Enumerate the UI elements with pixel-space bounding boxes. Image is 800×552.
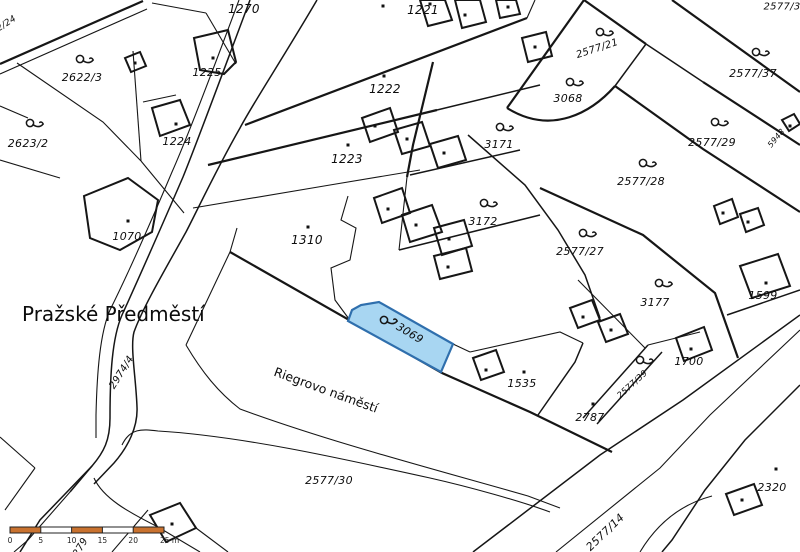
building-dot (448, 238, 451, 241)
building-dot (722, 212, 725, 215)
building-dot (534, 46, 537, 49)
parcel-label-1223: 1223 (331, 152, 363, 166)
scale-bar-tick-3: 15 (98, 536, 108, 545)
building-dot (347, 144, 350, 147)
cadastral-map-viewport[interactable]: 2/242622/32623/2107012251224127012211222… (0, 0, 800, 552)
garden-symbol-icon (711, 118, 728, 125)
scale-bar-tick-4: 20 (128, 536, 138, 545)
parcel-label-1599: 1599 (748, 289, 777, 302)
building-dot (171, 523, 174, 526)
parcel-label-1070: 1070 (112, 230, 141, 243)
garden-symbol-icon (596, 28, 613, 35)
building-dot (765, 282, 768, 285)
map-labels: 2/242622/32623/2107012251224127012211222… (0, 2, 800, 552)
garden-symbol-icon (480, 199, 497, 206)
building-dot (374, 125, 377, 128)
parcel-label-2577-30: 2577/30 (305, 474, 353, 487)
garden-symbol-icon (76, 55, 93, 62)
parcel-label-2-24: 2/24 (0, 14, 18, 34)
parcel-label-2577-29: 2577/29 (688, 136, 736, 149)
parcel-label-1225: 1225 (192, 66, 221, 79)
garden-symbol-icon (566, 78, 583, 85)
parcel-label-2577-37: 2577/37 (729, 67, 777, 80)
parcel-label-3172: 3172 (468, 215, 497, 228)
building-dot (747, 221, 750, 224)
parcel-label-1224: 1224 (162, 135, 191, 148)
building-dot (507, 6, 510, 9)
building-dot (582, 316, 585, 319)
parcel-label-3171: 3171 (484, 138, 513, 151)
cadastral-map-canvas[interactable]: 2/242622/32623/2107012251224127012211222… (0, 0, 800, 552)
building-dot (387, 208, 390, 211)
place-label-Riegrovo-n-m-st-: Riegrovo náměstí (272, 364, 381, 416)
parcel-label-2320: 2320 (757, 481, 786, 494)
garden-symbol-icon (26, 119, 43, 126)
garden-symbol-icon (655, 279, 672, 286)
parcel-label-2577-14: 2577/14 (584, 511, 627, 552)
parcel-label-5948: 5948 (766, 127, 787, 149)
scale-bar-tick-0: 0 (8, 536, 13, 545)
building-dot (464, 14, 467, 17)
scale-bar-tick-1: 5 (38, 536, 43, 545)
garden-symbol-icon (752, 48, 769, 55)
parcel-label-2577-21: 2577/21 (575, 37, 620, 61)
building-dot (382, 5, 385, 8)
parcel-label-1700: 1700 (674, 355, 703, 368)
garden-symbol-icon (636, 356, 653, 363)
parcel-label-1310: 1310 (291, 233, 323, 247)
building-dot (443, 152, 446, 155)
parcel-label-2787: 2787 (575, 411, 604, 424)
building-dot (592, 403, 595, 406)
scale-bar-tick-2: 10 (67, 536, 77, 545)
parcel-label-1222: 1222 (369, 82, 401, 96)
building-dots (127, 3, 792, 526)
parcel-label-3177: 3177 (640, 296, 669, 309)
building-dot (610, 329, 613, 332)
building-dot (134, 62, 137, 65)
building-dot (485, 369, 488, 372)
parcel-label-2623-2: 2623/2 (8, 137, 49, 150)
parcel-label-2577-27: 2577/27 (556, 245, 604, 258)
garden-symbol-icon (496, 123, 513, 130)
highlighted-parcel-3069[interactable] (348, 302, 453, 372)
building-dot (383, 75, 386, 78)
building-dot (415, 224, 418, 227)
parcel-label-2577-39: 2577/39 (615, 368, 650, 400)
scale-bar-tick-5: 25 m (160, 536, 179, 545)
building-dot (741, 499, 744, 502)
buildings (84, 0, 800, 542)
building-dot (406, 138, 409, 141)
building-dot (690, 348, 693, 351)
building-dot (175, 123, 178, 126)
building-dot (212, 57, 215, 60)
building-dot (307, 226, 310, 229)
parcel-label-1221: 1221 (407, 3, 439, 17)
parcel-label-2577-3: 2577/3 (764, 2, 800, 13)
parcel-label-2622-3: 2622/3 (62, 71, 103, 84)
parcel-label-2577-28: 2577/28 (617, 175, 665, 188)
parcel-label-1535: 1535 (507, 377, 536, 390)
scale-bar: 0510152025 m (8, 527, 180, 545)
place-label-Pra-sk--P-edm-st-: Pražské Předměstí (22, 302, 206, 326)
parcel-label-1270: 1270 (228, 2, 260, 16)
building-dot (523, 371, 526, 374)
building-dot (789, 125, 792, 128)
garden-symbol-icon (639, 159, 656, 166)
building-dot (775, 468, 778, 471)
building-dot (127, 220, 130, 223)
parcel-label-3068: 3068 (553, 92, 582, 105)
garden-symbol-icon (579, 229, 596, 236)
building-dot (447, 266, 450, 269)
